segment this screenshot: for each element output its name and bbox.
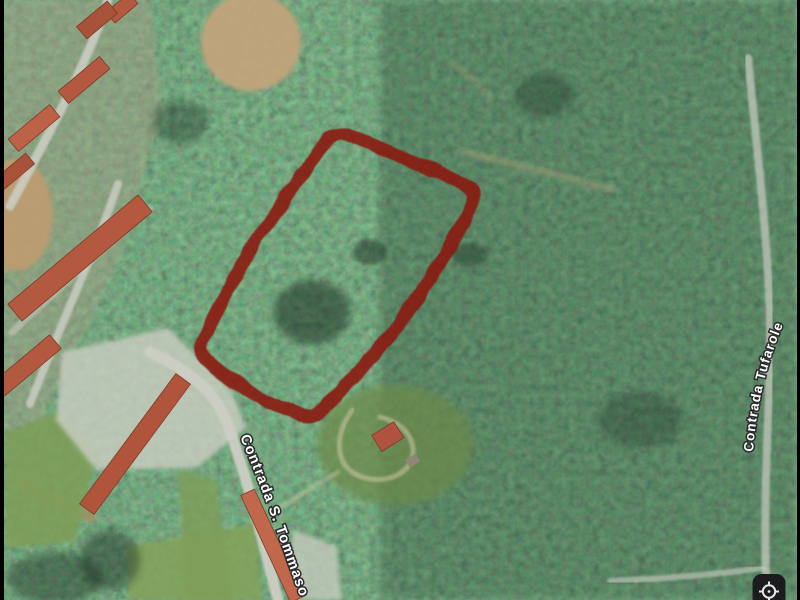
tree-clump — [452, 243, 488, 267]
forest-shade — [380, 0, 797, 600]
map-canvas: Contrada S. Tommaso Contrada Tufarole — [0, 0, 800, 600]
tree-clump — [80, 530, 140, 590]
letterbox-left — [0, 0, 4, 600]
tree-clump — [515, 73, 575, 117]
tree-clump — [598, 392, 682, 448]
tree-clump — [353, 239, 387, 265]
tree-clump — [274, 280, 350, 344]
my-location-button-bg[interactable] — [753, 574, 786, 600]
my-location-button[interactable] — [753, 574, 786, 600]
tree-clump — [152, 100, 208, 144]
app-window: Contrada S. Tommaso Contrada Tufarole — [0, 0, 800, 600]
satellite-imagery[interactable]: Contrada S. Tommaso Contrada Tufarole — [0, 0, 797, 600]
